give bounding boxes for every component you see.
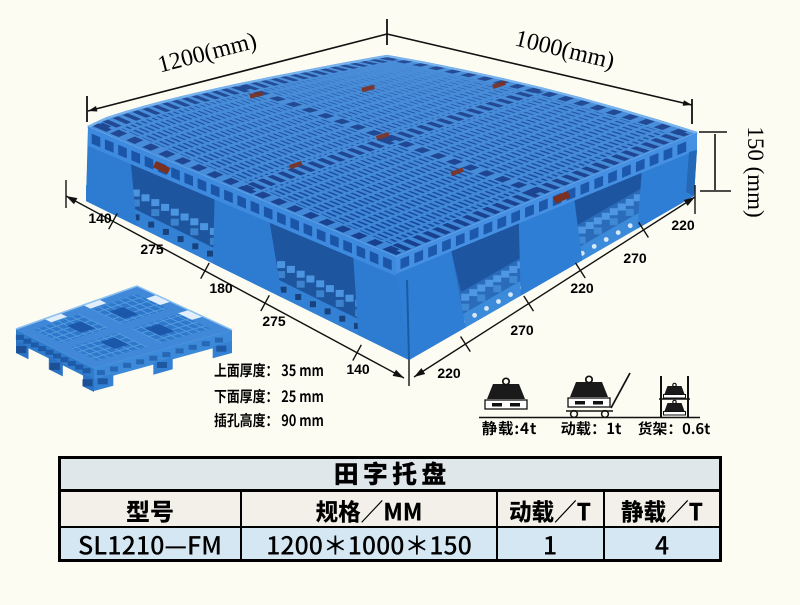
- svg-text:140: 140: [346, 361, 370, 377]
- svg-text:275: 275: [140, 241, 164, 257]
- svg-text:140: 140: [88, 210, 112, 226]
- svg-text:220: 220: [570, 280, 594, 296]
- svg-text:220: 220: [437, 365, 461, 381]
- svg-text:150 (mm): 150 (mm): [743, 126, 768, 217]
- svg-text:270: 270: [510, 322, 534, 338]
- svg-text:220: 220: [671, 217, 695, 233]
- svg-text:275: 275: [262, 313, 286, 329]
- svg-text:180: 180: [209, 280, 233, 296]
- svg-text:270: 270: [623, 250, 647, 266]
